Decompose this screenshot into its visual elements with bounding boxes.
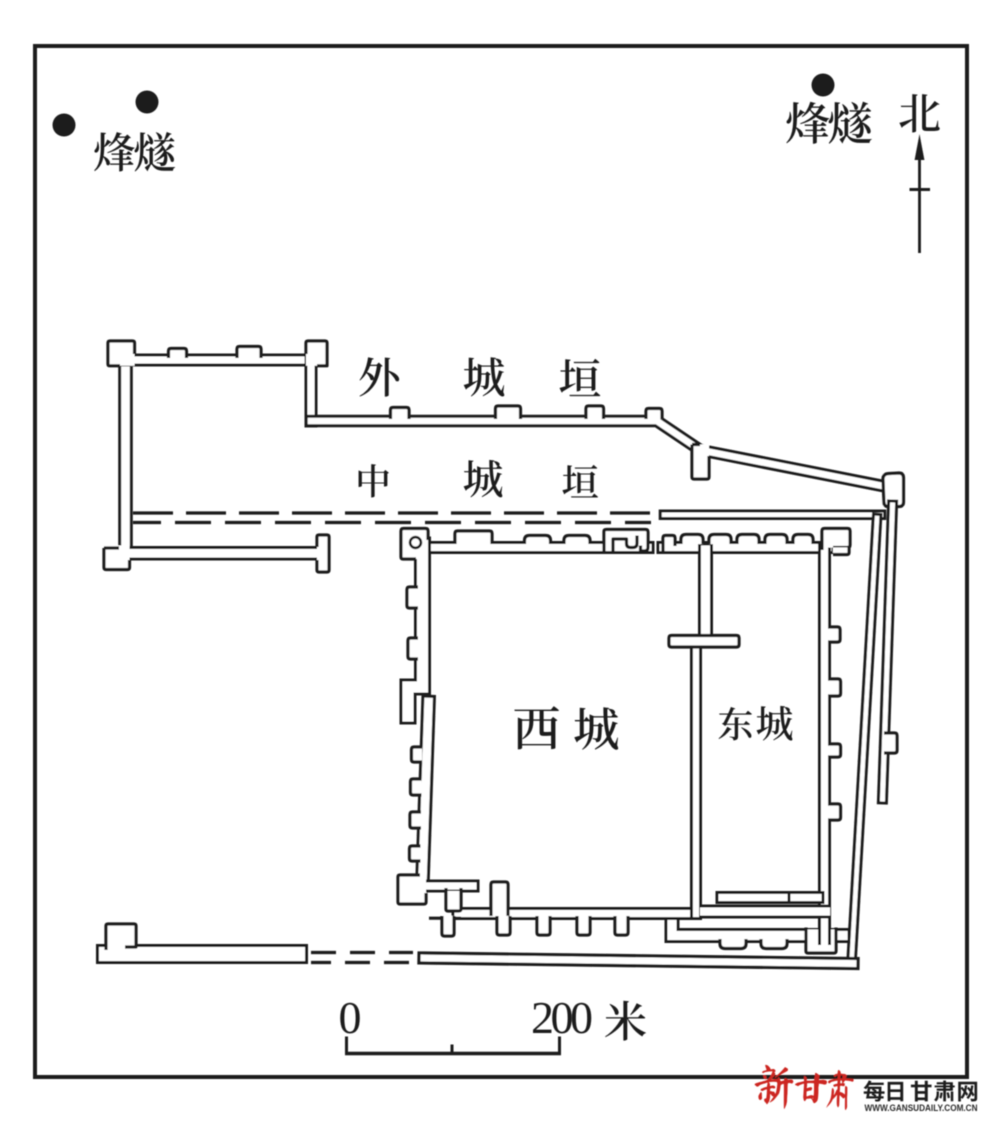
- svg-text:0: 0: [339, 992, 362, 1043]
- svg-text:200: 200: [531, 992, 593, 1043]
- svg-text:WWW.GANSUDAILY.COM.CN: WWW.GANSUDAILY.COM.CN: [865, 1103, 978, 1113]
